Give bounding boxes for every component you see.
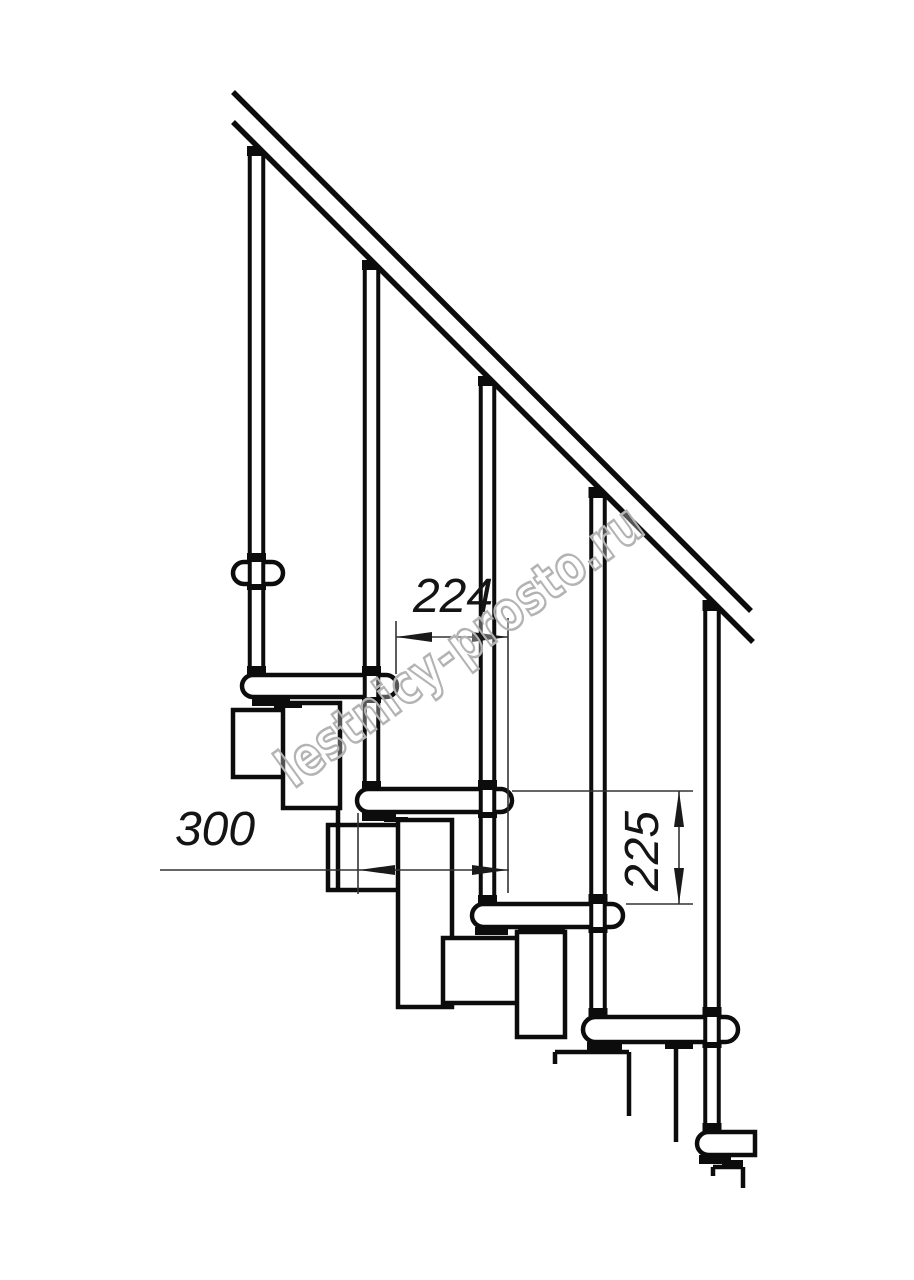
baluster-collar [478, 895, 497, 904]
baluster-collar [362, 781, 381, 790]
baluster-collar [703, 1123, 722, 1132]
baluster-collar [589, 894, 608, 904]
step-module [443, 938, 518, 1003]
technical-drawing-page: 224 300 225 lestnicy-prosto.ru [0, 0, 914, 1280]
baluster-collar [478, 812, 497, 818]
baluster-body [481, 386, 495, 896]
tread-bracket [274, 703, 302, 708]
baluster-collar [478, 780, 497, 790]
tread [697, 1132, 755, 1155]
dimension-arrow [674, 791, 684, 827]
dimension-label-depth: 300 [160, 806, 270, 854]
baluster-collar [589, 1008, 608, 1017]
baluster-collar [703, 1007, 722, 1017]
step-module [517, 932, 565, 1037]
baluster-collar [703, 1042, 722, 1048]
dimension-arrow [396, 632, 432, 642]
dimension-label-rise: 225 [619, 796, 667, 906]
baluster-collar [247, 666, 266, 676]
step-module [233, 710, 288, 777]
drawing-canvas [0, 0, 914, 1280]
tread-bracket [722, 1160, 743, 1165]
baluster-collar [362, 666, 381, 676]
tread-bracket [384, 817, 408, 822]
baluster-collar [362, 697, 381, 703]
baluster-collar [247, 553, 266, 562]
baluster-collar [589, 927, 608, 933]
dimension-arrow [674, 868, 684, 904]
dimension-label-run: 224 [398, 573, 508, 621]
baluster-body [365, 270, 379, 782]
baluster-body [250, 156, 264, 667]
step-module [283, 703, 340, 808]
baluster-collar [247, 584, 266, 590]
